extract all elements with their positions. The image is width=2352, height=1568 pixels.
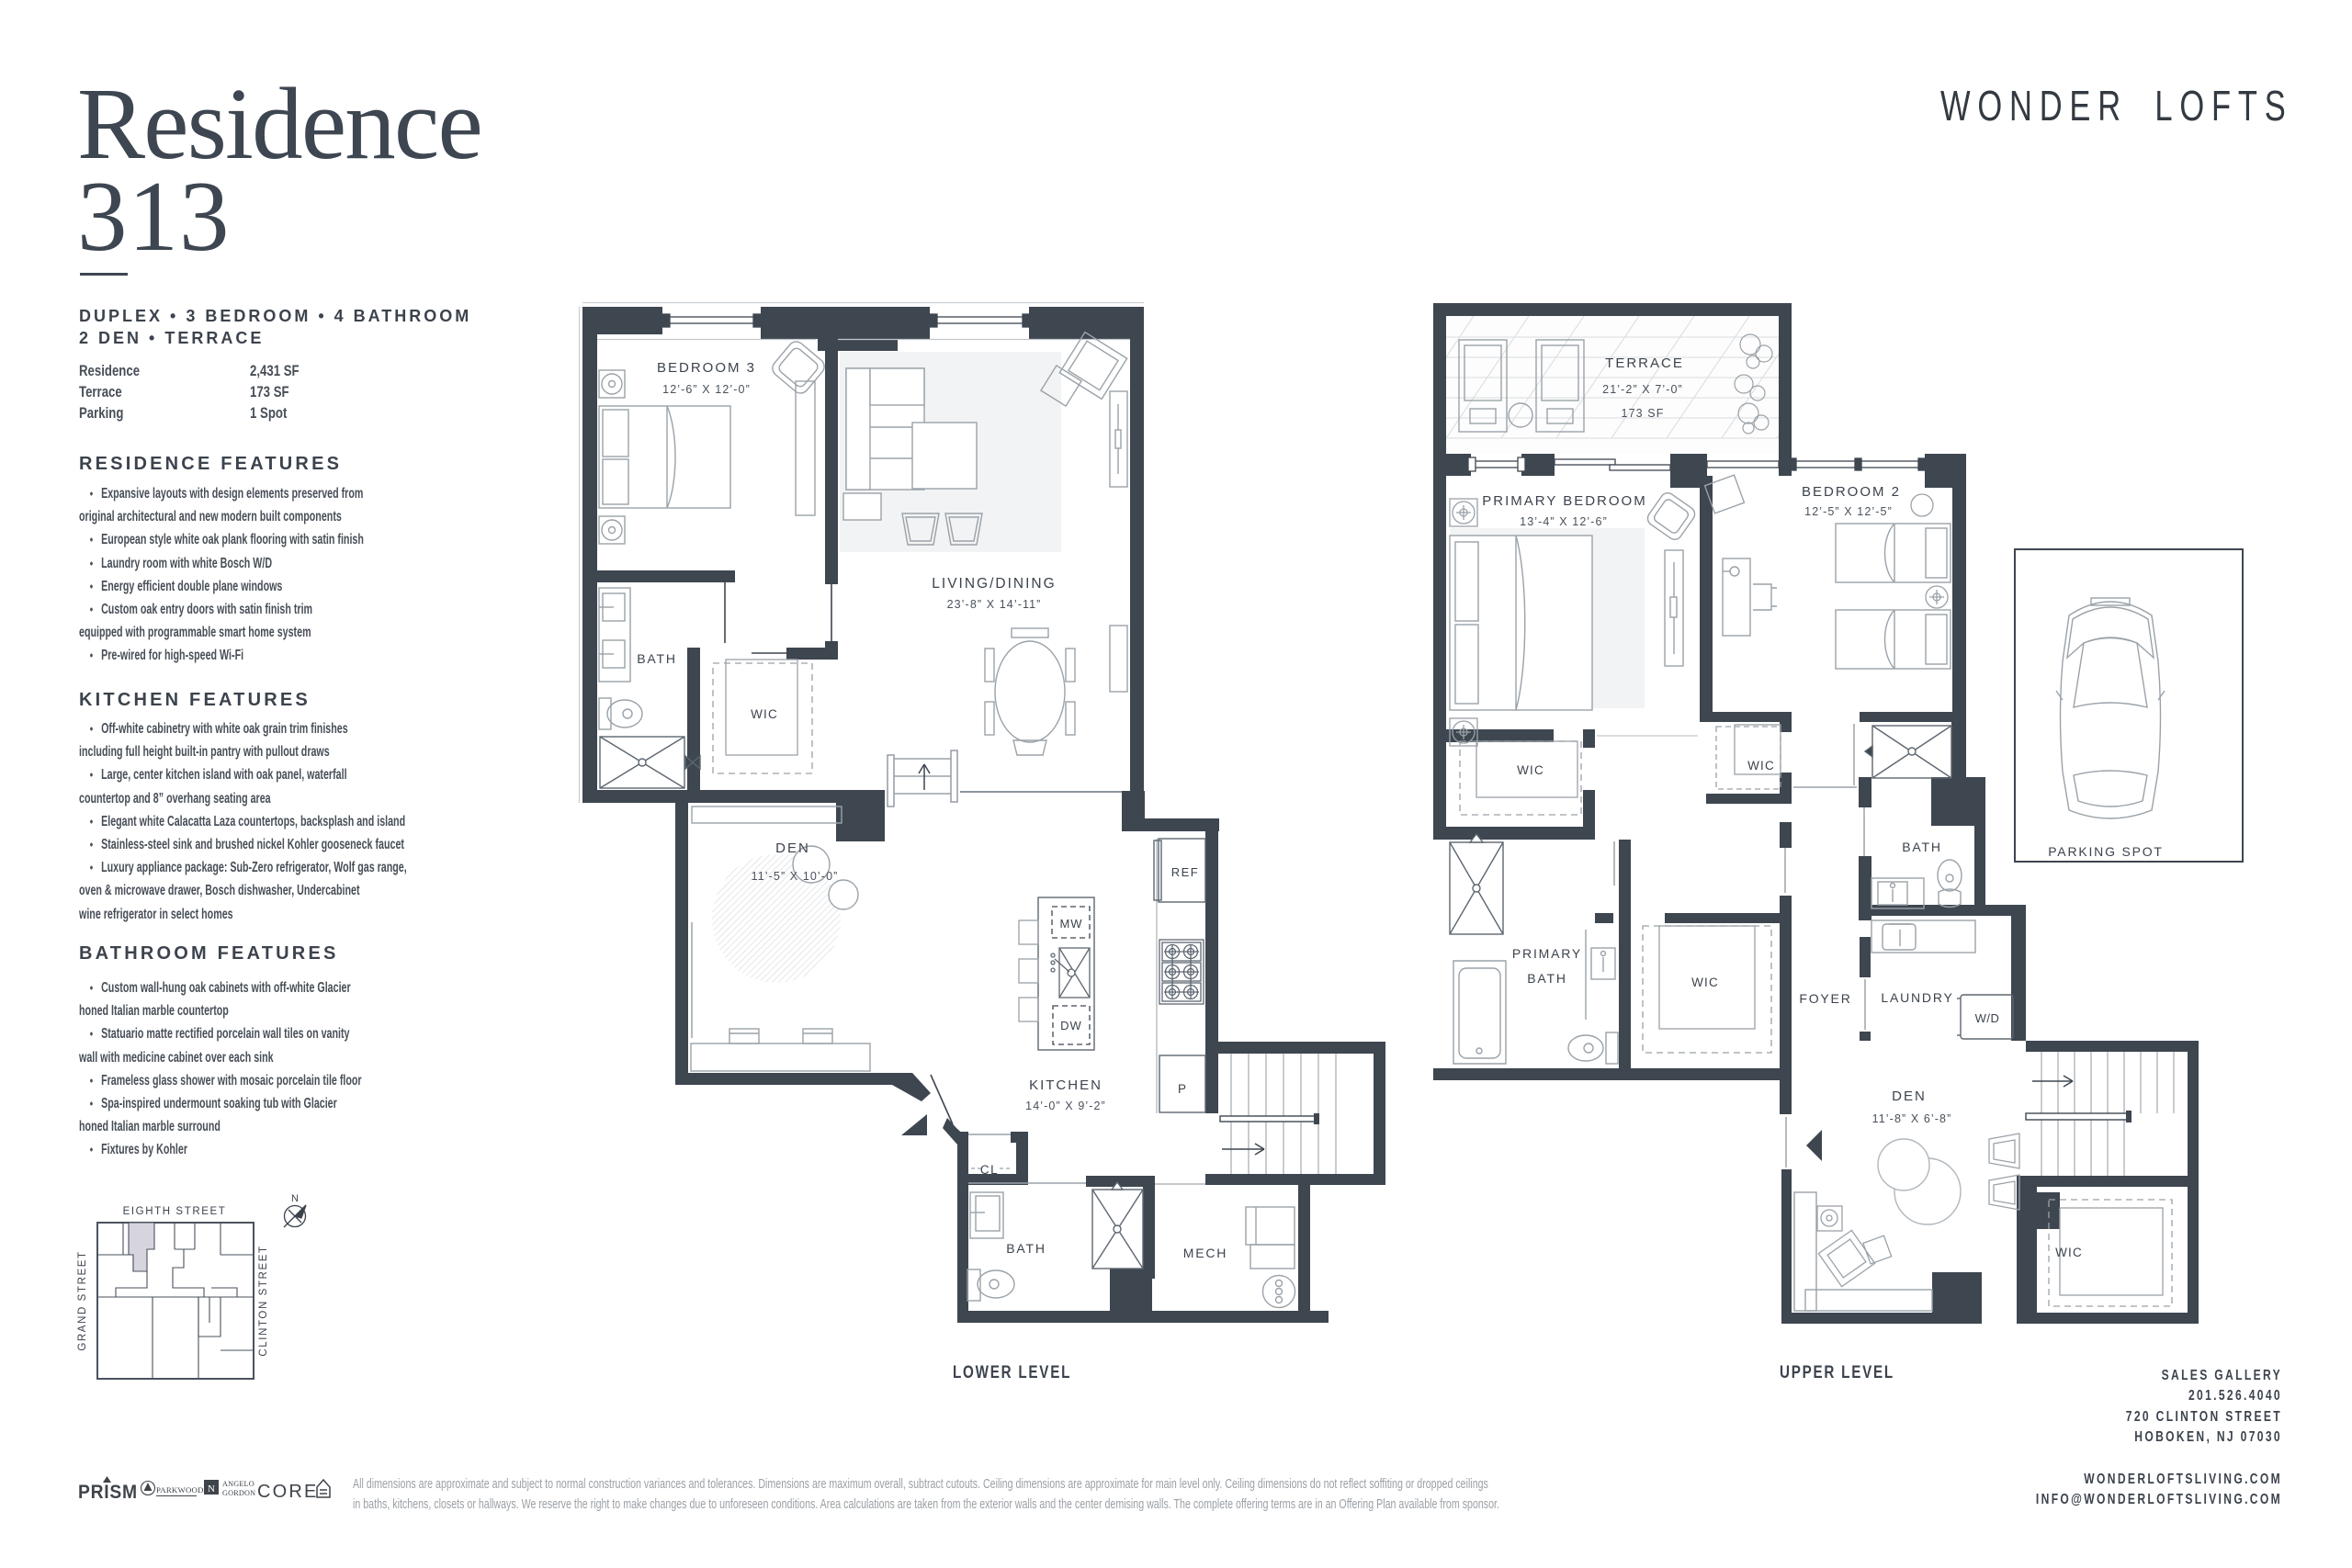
svg-text:BATH: BATH <box>1902 840 1942 854</box>
svg-text:KITCHEN: KITCHEN <box>1029 1077 1102 1093</box>
svg-text:WIC: WIC <box>1517 763 1544 777</box>
svg-text:21’-2” X 7’-0”: 21’-2” X 7’-0” <box>1602 383 1683 396</box>
svg-text:DEN: DEN <box>775 840 810 856</box>
svg-text:PARKWOOD: PARKWOOD <box>156 1485 204 1495</box>
svg-text:W/D: W/D <box>1975 1011 2000 1025</box>
svg-text:PRIMARY BEDROOM: PRIMARY BEDROOM <box>1482 493 1646 509</box>
svg-text:BEDROOM 2: BEDROOM 2 <box>1802 484 1901 500</box>
svg-text:DW: DW <box>1060 1019 1082 1032</box>
svg-text:MECH: MECH <box>1183 1246 1227 1260</box>
svg-text:11’-8” X 6’-8”: 11’-8” X 6’-8” <box>1872 1112 1952 1125</box>
svg-text:WIC: WIC <box>751 707 778 721</box>
svg-text:FOYER: FOYER <box>1799 991 1851 1006</box>
svg-text:14’-0” X 9’-2”: 14’-0” X 9’-2” <box>1025 1100 1106 1112</box>
svg-text:LIVING/DINING: LIVING/DINING <box>932 576 1056 592</box>
svg-text:CLINTON STREET: CLINTON STREET <box>258 1245 269 1356</box>
svg-text:GORDON: GORDON <box>222 1489 255 1497</box>
svg-text:REF: REF <box>1171 865 1200 879</box>
svg-text:WIC: WIC <box>1747 759 1775 773</box>
svg-text:PARKING SPOT: PARKING SPOT <box>2048 844 2164 859</box>
svg-text:DEN: DEN <box>1892 1089 1927 1104</box>
svg-text:WIC: WIC <box>2055 1246 2083 1259</box>
svg-text:PRIMARY: PRIMARY <box>1512 946 1582 961</box>
svg-text:CL: CL <box>980 1163 999 1177</box>
svg-text:GRAND STREET: GRAND STREET <box>77 1250 88 1350</box>
svg-text:23’-8” X 14’-11”: 23’-8” X 14’-11” <box>947 598 1042 611</box>
svg-text:WIC: WIC <box>1691 976 1719 989</box>
svg-text:PRISM: PRISM <box>78 1482 138 1503</box>
svg-text:EIGHTH STREET: EIGHTH STREET <box>123 1206 227 1217</box>
svg-text:13’-4” X 12’-6”: 13’-4” X 12’-6” <box>1520 515 1608 528</box>
svg-text:CORE: CORE <box>257 1482 319 1502</box>
svg-text:BATH: BATH <box>1006 1241 1046 1256</box>
svg-text:MW: MW <box>1059 917 1082 931</box>
svg-text:TERRACE: TERRACE <box>1605 355 1684 371</box>
svg-text:11’-5” X 10’-0”: 11’-5” X 10’-0” <box>752 870 839 883</box>
svg-text:173 SF: 173 SF <box>1622 407 1665 420</box>
svg-text:LAUNDRY: LAUNDRY <box>1881 990 1953 1005</box>
svg-text:12’-5” X 12’-5”: 12’-5” X 12’-5” <box>1804 505 1893 518</box>
svg-text:N: N <box>208 1483 215 1495</box>
svg-text:P: P <box>1178 1082 1187 1096</box>
svg-text:ANGELO: ANGELO <box>222 1480 254 1488</box>
svg-text:BEDROOM 3: BEDROOM 3 <box>657 360 756 376</box>
svg-text:12’-6” X 12’-0”: 12’-6” X 12’-0” <box>662 383 751 396</box>
svg-text:BATH: BATH <box>1527 971 1567 986</box>
svg-text:N: N <box>291 1193 299 1204</box>
svg-text:BATH: BATH <box>637 651 677 666</box>
